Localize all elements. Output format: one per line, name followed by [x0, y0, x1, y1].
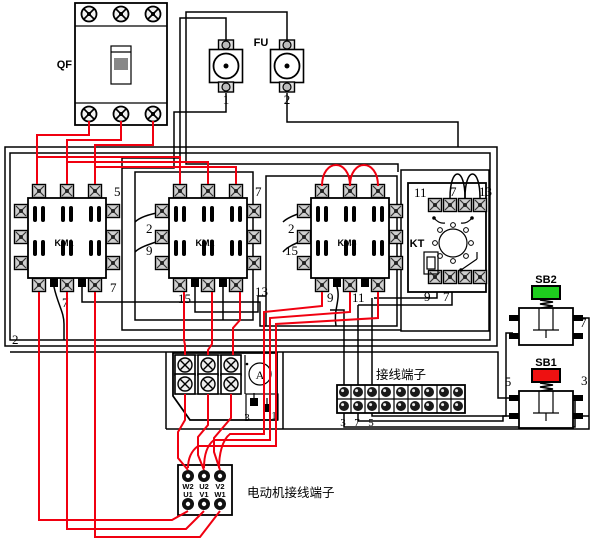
fuse2-icon — [271, 40, 304, 92]
km3-wire15-label: 15 — [285, 243, 298, 258]
km3-wire2-label: 2 — [288, 221, 295, 236]
strip-label: 接线端子 — [376, 367, 426, 382]
motor-terminal-block: W2 U2 V2 U1 V1 W1 电动机接线端子 — [178, 465, 335, 515]
sb1-spring-icon — [540, 383, 553, 391]
km1-wire5-label: 5 — [114, 184, 121, 199]
wire-km1-km2-2 — [67, 162, 208, 184]
strip-wire7-label: 7 — [354, 417, 360, 429]
sb2-terminal — [509, 315, 519, 321]
kt-terminal — [429, 199, 442, 212]
km3-label: KM3 — [337, 238, 356, 248]
km1-wire7a-label: 7 — [110, 280, 117, 295]
motor-terminal — [182, 470, 194, 482]
kt-terminal — [474, 199, 487, 212]
sb1-body — [519, 391, 573, 428]
module-screw — [221, 355, 241, 375]
kt-wire9-label: 9 — [424, 289, 431, 304]
qf-screw-icon — [114, 107, 129, 122]
kt-wire11-label: 11 — [414, 185, 427, 200]
kt-switch-dot — [459, 268, 463, 272]
motor-terminal — [198, 498, 210, 510]
module-aux-terminal — [250, 398, 258, 406]
strip-wire5-label: 5 — [368, 417, 374, 429]
sb1-wire3-label: 3 — [581, 373, 588, 388]
km2-wire9-label: 9 — [146, 243, 153, 258]
motor-terminal — [214, 498, 226, 510]
sb1-terminal — [573, 413, 583, 419]
qf-screw-icon — [82, 107, 97, 122]
km2-label: KM2 — [195, 238, 214, 248]
sb1-label: SB1 — [535, 357, 556, 369]
sb2-cap — [532, 286, 560, 299]
kt-terminal — [444, 271, 457, 284]
qf-screw-icon — [114, 7, 129, 22]
motor-terminal — [182, 498, 194, 510]
kt-wire7top-label: 7 — [450, 184, 457, 199]
kt-wire13-label: 13 — [479, 184, 492, 199]
sb2-terminal — [509, 333, 519, 339]
sb1-terminal — [509, 413, 519, 419]
terminal-strip: 接线端子 3 7 5 — [337, 367, 465, 429]
motor-terminal — [198, 470, 210, 482]
breaker-qf: QF — [57, 3, 167, 125]
motor-term-w1: W1 — [214, 490, 225, 499]
module-screw — [221, 374, 241, 394]
diagram-canvas: QF FU 1 2 KM1 KM2 KM3 5 7 7 2 2 9 7 15 1… — [0, 0, 600, 551]
sb2-spring-icon — [540, 300, 553, 308]
strip-wire3-label: 3 — [340, 417, 346, 429]
km2-wire7-label: 7 — [255, 184, 262, 199]
sb2-terminal — [573, 333, 583, 339]
wire-fu2-bottom-feed — [287, 93, 458, 147]
fu-label: FU — [254, 37, 269, 49]
sb1-terminal — [573, 395, 583, 401]
qf-screw-icon — [146, 107, 161, 122]
module-screw — [198, 355, 218, 375]
km3-wire11-label: 11 — [352, 290, 365, 305]
sb1-cap — [532, 369, 560, 382]
button-sb2: SB2 7 — [509, 274, 587, 345]
kt-contact-dot — [432, 216, 436, 220]
motor-terminal — [214, 470, 226, 482]
sb2-body — [519, 308, 573, 345]
qf-screw-icon — [82, 7, 97, 22]
qf-label: QF — [57, 59, 73, 71]
kt-terminal — [459, 271, 472, 284]
motor-term-u1: U1 — [183, 490, 193, 499]
sb1-wire5-label: 5 — [505, 374, 512, 389]
module-wire3-label: 3 — [244, 412, 250, 424]
motor-block-label: 电动机接线端子 — [247, 485, 335, 500]
kt-wire7bot-label: 7 — [443, 289, 450, 304]
ammeter-dot — [246, 363, 249, 366]
kt-terminal — [459, 199, 472, 212]
wire-strip7-sb1 — [358, 413, 509, 421]
sb2-wire7-label: 7 — [580, 315, 587, 330]
km2-wire13-label: 13 — [255, 284, 268, 299]
fuse1-icon — [210, 40, 243, 92]
km3-wire9-label: 9 — [327, 290, 334, 305]
kt-label: KT — [410, 238, 425, 250]
wire-km2-module-1 — [184, 292, 185, 355]
qf-screw-icon — [146, 7, 161, 22]
overload-module: A 3 1 — [173, 353, 278, 424]
km1-label: KM1 — [54, 238, 73, 248]
button-sb1: SB1 5 3 — [505, 357, 588, 428]
km2-wire2-label: 2 — [146, 221, 153, 236]
kt-terminal — [474, 271, 487, 284]
km1-wire2-label: 2 — [12, 332, 19, 347]
motor-term-v1: V1 — [199, 490, 208, 499]
module-screw — [175, 355, 195, 375]
module-screw — [175, 374, 195, 394]
module-screw — [198, 374, 218, 394]
kt-terminal — [429, 271, 442, 284]
sb2-label: SB2 — [535, 274, 556, 286]
timer-kt: KT 11 7 13 9 7 — [408, 174, 492, 304]
sb1-terminal — [509, 395, 519, 401]
qf-toggle-grip — [114, 58, 128, 70]
kt-contact-dot — [470, 216, 474, 220]
fuse-group: FU 1 2 — [210, 37, 304, 107]
fuse2-number: 2 — [284, 92, 291, 107]
wire-km1-km2-3 — [95, 167, 236, 184]
fuse1-number: 1 — [223, 92, 230, 107]
wiring-diagram: QF FU 1 2 KM1 KM2 KM3 5 7 7 2 2 9 7 15 1… — [0, 0, 600, 551]
kt-terminal — [444, 199, 457, 212]
